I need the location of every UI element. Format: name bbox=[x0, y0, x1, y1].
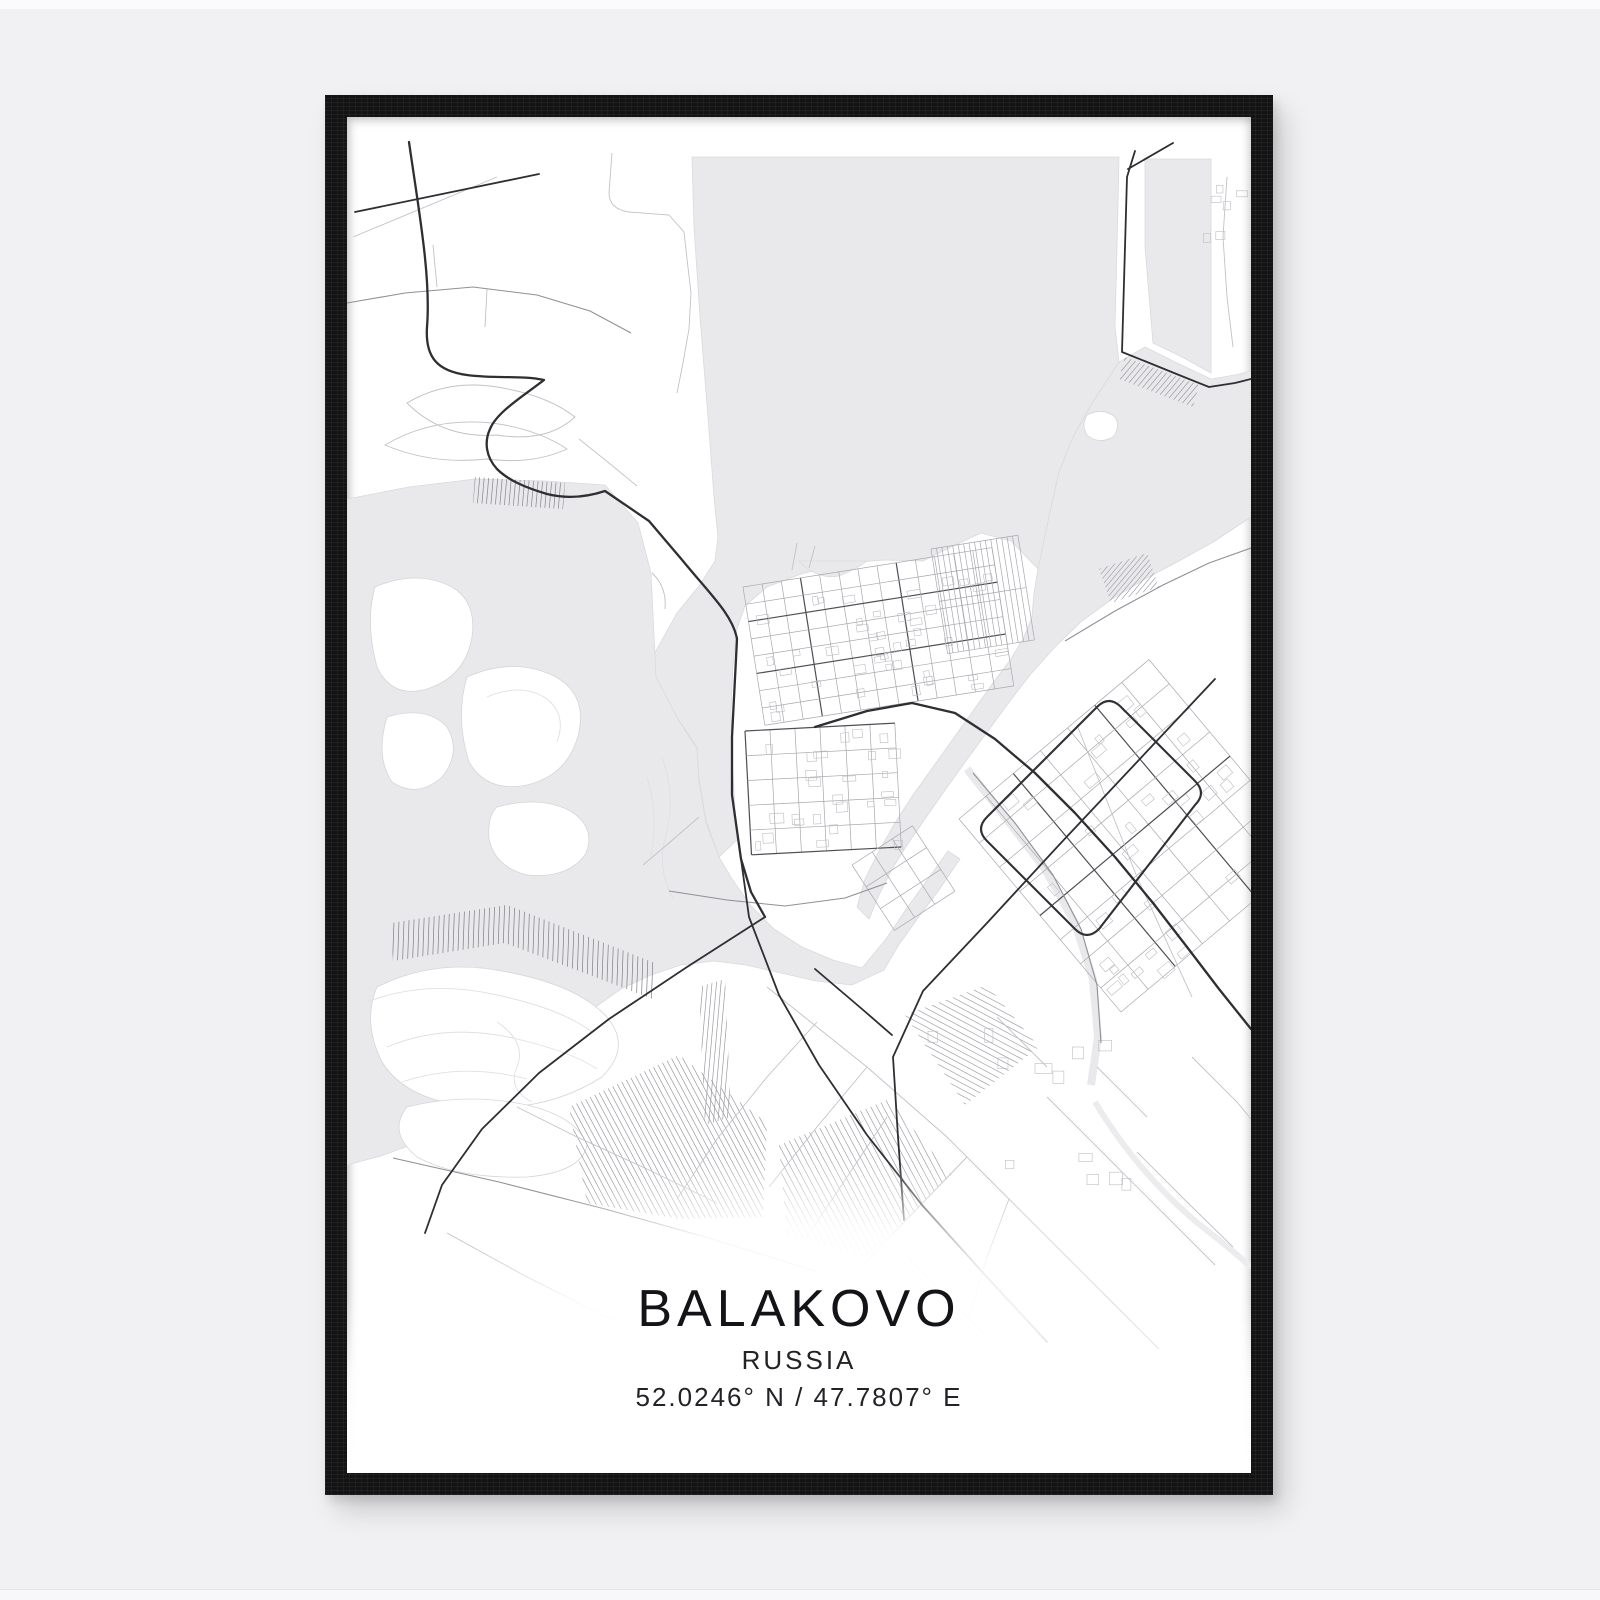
caption-fade bbox=[347, 1154, 1251, 1473]
floor-band bbox=[0, 1589, 1600, 1600]
old-town-lower-grid bbox=[745, 723, 901, 855]
poster-frame: BALAKOVO RUSSIA 52.0246° N / 47.7807° E bbox=[325, 95, 1273, 1495]
poster-paper: BALAKOVO RUSSIA 52.0246° N / 47.7807° E bbox=[347, 117, 1251, 1473]
wall-highlight-band bbox=[0, 0, 1600, 9]
city-map bbox=[347, 117, 1251, 1473]
page: { "poster": { "title": "BALAKOVO", "subt… bbox=[0, 0, 1600, 1600]
new-district-grid bbox=[959, 660, 1251, 1012]
old-town-buildings-upper bbox=[756, 573, 1008, 721]
old-town-buildings-lower bbox=[755, 729, 903, 850]
garage-stripes bbox=[931, 535, 1034, 653]
new-district-buildings bbox=[1002, 696, 1240, 996]
